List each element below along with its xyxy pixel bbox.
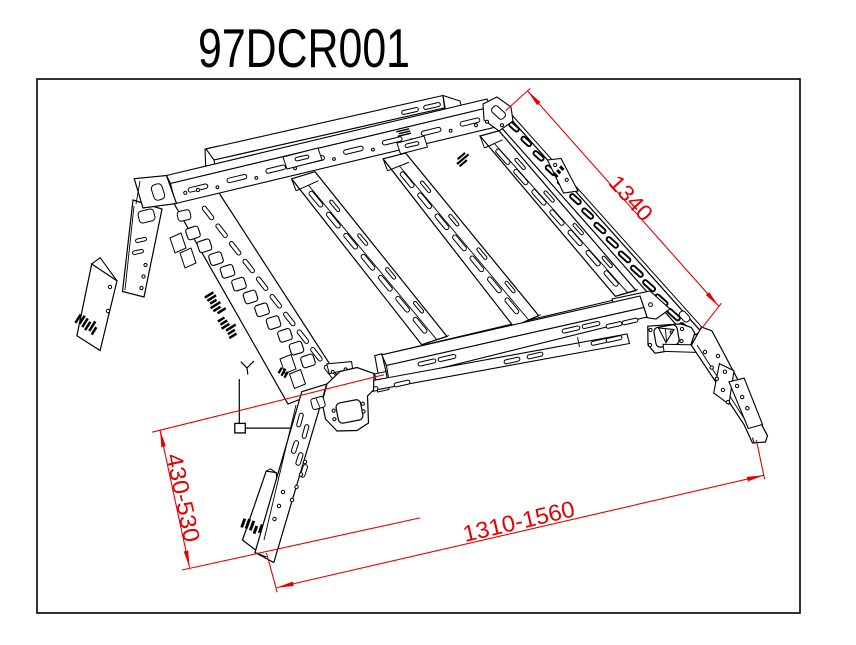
svg-text:97DCR001: 97DCR001 xyxy=(198,17,410,79)
